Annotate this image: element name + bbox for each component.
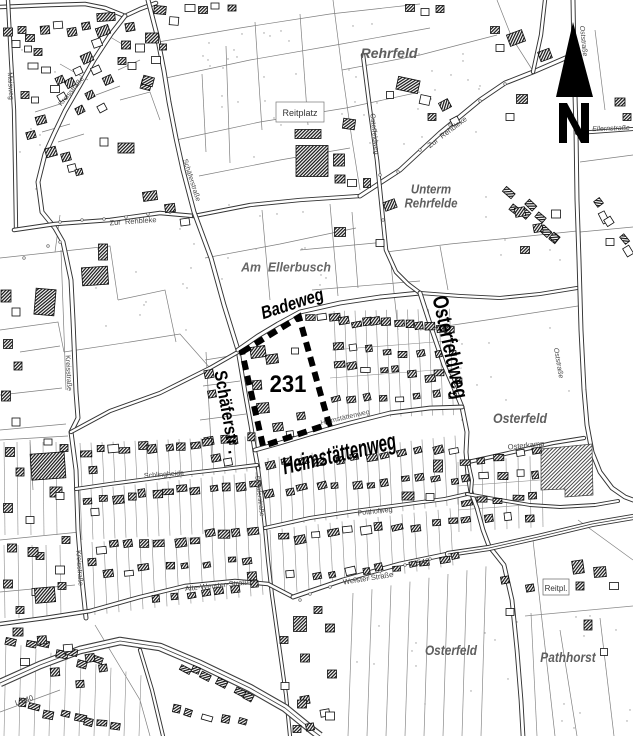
- svg-text:Am Ellerbusch: Am Ellerbusch: [240, 260, 331, 274]
- svg-text:Pathhorst: Pathhorst: [540, 649, 596, 665]
- svg-text:Ellernstraße: Ellernstraße: [592, 125, 630, 133]
- svg-text:Osterfeld: Osterfeld: [493, 410, 548, 426]
- svg-text:Maisweg: Maisweg: [6, 72, 14, 100]
- svg-text:Rehrfeld: Rehrfeld: [361, 45, 418, 61]
- svg-text:Osterfeld: Osterfeld: [425, 642, 477, 658]
- svg-text:Unterm: Unterm: [411, 182, 452, 197]
- svg-text:231: 231: [270, 370, 307, 397]
- svg-text:Reitpl.: Reitpl.: [545, 584, 568, 593]
- svg-text:Reitplatz: Reitplatz: [282, 108, 318, 118]
- svg-text:Rehrfelde: Rehrfelde: [404, 196, 457, 211]
